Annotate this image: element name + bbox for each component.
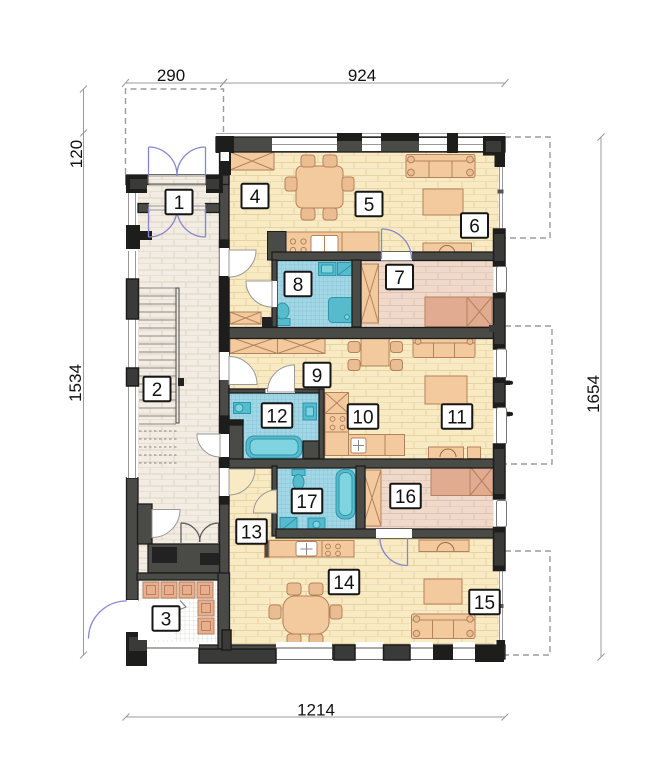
svg-text:10: 10 (352, 407, 373, 428)
svg-text:14: 14 (333, 573, 355, 594)
svg-text:13: 13 (241, 522, 262, 543)
svg-text:924: 924 (348, 66, 376, 85)
svg-text:8: 8 (293, 275, 304, 296)
svg-text:4: 4 (250, 187, 261, 208)
svg-text:290: 290 (157, 66, 185, 85)
svg-text:5: 5 (364, 195, 375, 216)
svg-text:1534: 1534 (66, 364, 85, 402)
svg-text:12: 12 (266, 406, 287, 427)
svg-text:17: 17 (296, 492, 317, 513)
svg-text:16: 16 (395, 487, 416, 508)
svg-text:11: 11 (447, 407, 467, 428)
svg-text:9: 9 (312, 366, 323, 387)
svg-text:120: 120 (67, 140, 86, 168)
svg-text:6: 6 (469, 216, 480, 237)
svg-text:1214: 1214 (297, 701, 335, 720)
svg-text:15: 15 (474, 593, 495, 614)
svg-text:7: 7 (394, 268, 405, 289)
svg-text:3: 3 (161, 609, 172, 630)
svg-text:1: 1 (174, 193, 185, 214)
svg-text:1654: 1654 (584, 375, 603, 413)
svg-text:2: 2 (152, 380, 163, 401)
